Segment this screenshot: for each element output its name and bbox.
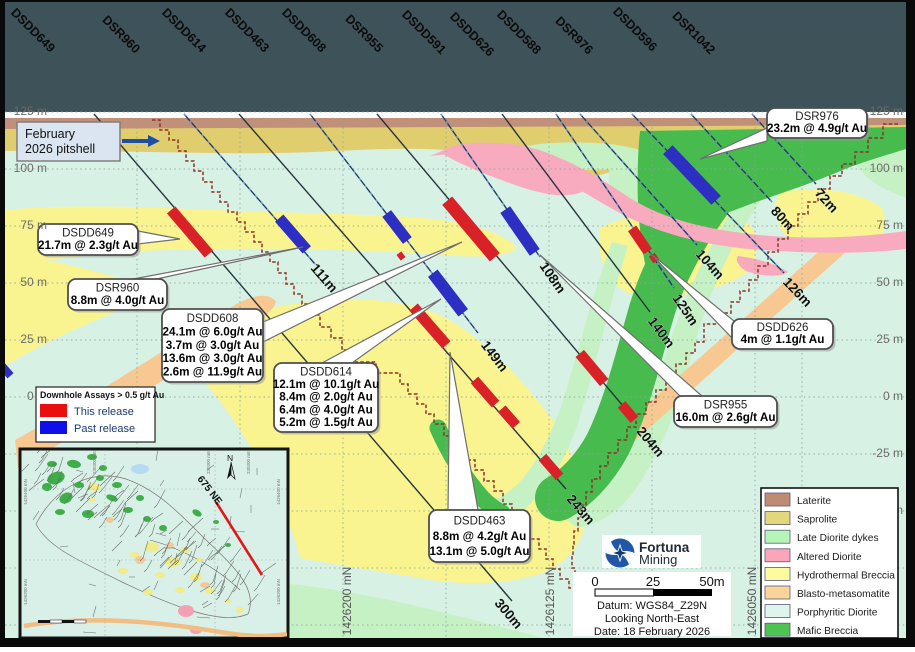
svg-text:Datum: WGS84_Z29N: Datum: WGS84_Z29N xyxy=(597,600,707,612)
svg-text:1426200 mN: 1426200 mN xyxy=(276,579,281,605)
svg-text:This release: This release xyxy=(74,406,134,418)
svg-text:25: 25 xyxy=(646,574,660,589)
svg-text:13.1m @ 5.0g/t Au: 13.1m @ 5.0g/t Au xyxy=(430,545,530,558)
svg-text:25 m: 25 m xyxy=(20,332,47,346)
svg-text:Hydrothermal Breccia: Hydrothermal Breccia xyxy=(797,570,895,581)
svg-text:N: N xyxy=(227,453,233,463)
svg-text:50m: 50m xyxy=(699,574,724,589)
svg-text:75 m: 75 m xyxy=(876,218,903,232)
svg-text:75 m: 75 m xyxy=(20,218,47,232)
svg-text:Downhole Assays > 0.5 g/t Au: Downhole Assays > 0.5 g/t Au xyxy=(40,390,164,400)
svg-text:1426400 mN: 1426400 mN xyxy=(276,479,281,505)
svg-text:Altered Diorite: Altered Diorite xyxy=(797,552,862,563)
svg-text:50 m: 50 m xyxy=(876,275,903,289)
svg-text:DSR955: DSR955 xyxy=(704,399,747,411)
svg-text:0 m: 0 m xyxy=(883,389,903,403)
svg-text:125 m: 125 m xyxy=(14,104,47,118)
svg-text:Looking North-East: Looking North-East xyxy=(605,613,699,625)
svg-text:24.1m @ 6.0g/t Au: 24.1m @ 6.0g/t Au xyxy=(163,325,263,338)
svg-text:100 m: 100 m xyxy=(870,161,903,175)
svg-text:Laterite: Laterite xyxy=(797,496,831,507)
svg-text:5.2m @ 1.5g/t Au: 5.2m @ 1.5g/t Au xyxy=(279,416,372,429)
svg-text:Late Diorite dykes: Late Diorite dykes xyxy=(797,533,879,544)
svg-text:Mafic Breccia: Mafic Breccia xyxy=(797,626,858,637)
svg-text:230300 mE: 230300 mE xyxy=(92,451,97,474)
svg-text:DSDD614: DSDD614 xyxy=(300,366,352,378)
svg-text:12.1m @ 10.1g/t Au: 12.1m @ 10.1g/t Au xyxy=(273,378,379,391)
svg-text:DSDD608: DSDD608 xyxy=(187,313,239,325)
svg-text:0: 0 xyxy=(591,574,598,589)
svg-text:Mining: Mining xyxy=(639,552,677,567)
svg-text:1426200 mN: 1426200 mN xyxy=(340,567,354,636)
svg-text:125 m: 125 m xyxy=(870,104,903,118)
svg-text:2.6m @ 11.9g/t Au: 2.6m @ 11.9g/t Au xyxy=(163,366,262,379)
svg-text:100 m: 100 m xyxy=(14,161,47,175)
svg-text:25 m: 25 m xyxy=(876,332,903,346)
svg-text:13.6m @ 3.0g/t Au: 13.6m @ 3.0g/t Au xyxy=(163,352,263,365)
svg-text:DSDD649: DSDD649 xyxy=(62,227,114,239)
svg-text:Date: 18 February 2026: Date: 18 February 2026 xyxy=(594,626,710,638)
svg-text:2026 pitshell: 2026 pitshell xyxy=(25,142,95,156)
svg-text:Blasto-metasomatite: Blasto-metasomatite xyxy=(797,589,890,600)
svg-text:8.4m @ 2.0g/t Au: 8.4m @ 2.0g/t Au xyxy=(279,391,372,404)
svg-text:1426125 mN: 1426125 mN xyxy=(543,567,557,636)
svg-text:Past release: Past release xyxy=(74,423,135,435)
svg-text:50 m: 50 m xyxy=(20,275,47,289)
svg-text:6.4m @ 4.0g/t Au: 6.4m @ 4.0g/t Au xyxy=(279,403,372,416)
svg-text:February: February xyxy=(25,127,76,141)
svg-text:-25 m: -25 m xyxy=(872,446,903,460)
svg-text:Saprolite: Saprolite xyxy=(797,515,838,526)
svg-text:8.8m @ 4.0g/t Au: 8.8m @ 4.0g/t Au xyxy=(71,294,164,307)
svg-text:4m @ 1.1g/t Au: 4m @ 1.1g/t Au xyxy=(741,333,825,346)
svg-text:Porphyritic Diorite: Porphyritic Diorite xyxy=(797,608,878,619)
svg-text:23.2m @ 4.9g/t Au: 23.2m @ 4.9g/t Au xyxy=(767,122,867,135)
svg-text:1426050 mN: 1426050 mN xyxy=(745,567,759,636)
svg-text:230300 mE: 230300 mE xyxy=(246,451,251,474)
svg-text:DSDD463: DSDD463 xyxy=(454,516,506,528)
svg-text:1426400 mN: 1426400 mN xyxy=(23,479,28,505)
svg-text:DSR960: DSR960 xyxy=(96,282,139,294)
svg-text:3.7m @ 3.0g/t Au: 3.7m @ 3.0g/t Au xyxy=(166,339,259,352)
svg-text:21.7m @ 2.3g/t Au: 21.7m @ 2.3g/t Au xyxy=(38,239,138,252)
svg-text:16.0m @ 2.6g/t Au: 16.0m @ 2.6g/t Au xyxy=(676,411,776,424)
svg-text:8.8m @ 4.2g/t Au: 8.8m @ 4.2g/t Au xyxy=(433,530,526,543)
svg-text:1426200 mN: 1426200 mN xyxy=(23,579,28,605)
svg-text:230300 mE: 230300 mE xyxy=(206,451,211,474)
